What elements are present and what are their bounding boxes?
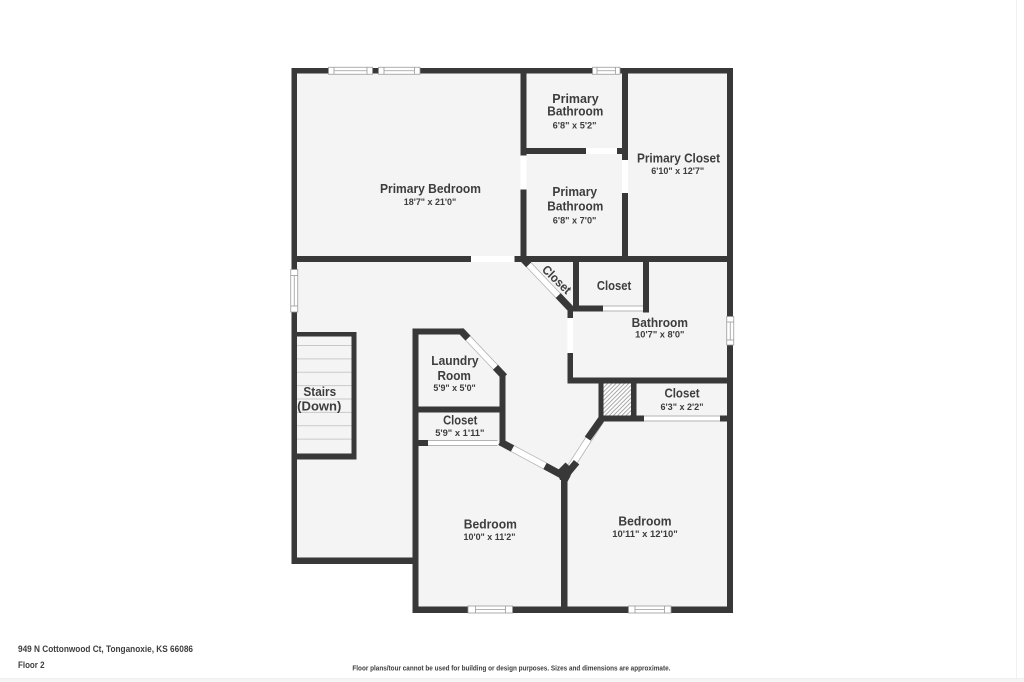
- svg-text:Bathroom: Bathroom: [547, 199, 603, 213]
- svg-text:10'0" x 11'2": 10'0" x 11'2": [464, 532, 516, 543]
- svg-text:5'9" x 5'0": 5'9" x 5'0": [433, 383, 475, 394]
- svg-text:6'8" x 5'2": 6'8" x 5'2": [553, 120, 597, 131]
- svg-text:5'9" x 1'11": 5'9" x 1'11": [435, 428, 484, 439]
- svg-text:Floor 2: Floor 2: [18, 660, 45, 671]
- svg-text:Room: Room: [438, 369, 471, 383]
- svg-text:Stairs: Stairs: [303, 385, 336, 399]
- svg-text:Primary: Primary: [552, 185, 597, 199]
- svg-text:(Down): (Down): [297, 400, 341, 414]
- svg-text:Closet: Closet: [664, 387, 700, 401]
- svg-text:6'10" x 12'7": 6'10" x 12'7": [651, 166, 704, 177]
- svg-text:18'7" x 21'0": 18'7" x 21'0": [404, 197, 457, 208]
- svg-text:Bedroom: Bedroom: [618, 515, 671, 529]
- svg-text:10'11" x 12'10": 10'11" x 12'10": [612, 529, 678, 540]
- svg-text:Closet: Closet: [443, 414, 478, 428]
- svg-text:Closet: Closet: [597, 279, 632, 293]
- svg-text:949 N Cottonwood Ct, Tonganoxi: 949 N Cottonwood Ct, Tonganoxie, KS 6608…: [18, 644, 193, 655]
- svg-text:Floor plans/tour cannot be use: Floor plans/tour cannot be used for buil…: [352, 666, 670, 673]
- svg-text:Bedroom: Bedroom: [464, 518, 517, 532]
- svg-text:Bathroom: Bathroom: [547, 105, 603, 119]
- svg-text:6'3" x 2'2": 6'3" x 2'2": [661, 402, 704, 413]
- svg-text:Bathroom: Bathroom: [632, 316, 688, 330]
- svg-text:Laundry: Laundry: [431, 354, 478, 368]
- svg-text:6'8" x 7'0": 6'8" x 7'0": [553, 216, 597, 227]
- svg-text:Primary Bedroom: Primary Bedroom: [380, 182, 481, 196]
- svg-text:10'7" x 8'0": 10'7" x 8'0": [635, 330, 684, 341]
- svg-text:Primary Closet: Primary Closet: [637, 152, 721, 166]
